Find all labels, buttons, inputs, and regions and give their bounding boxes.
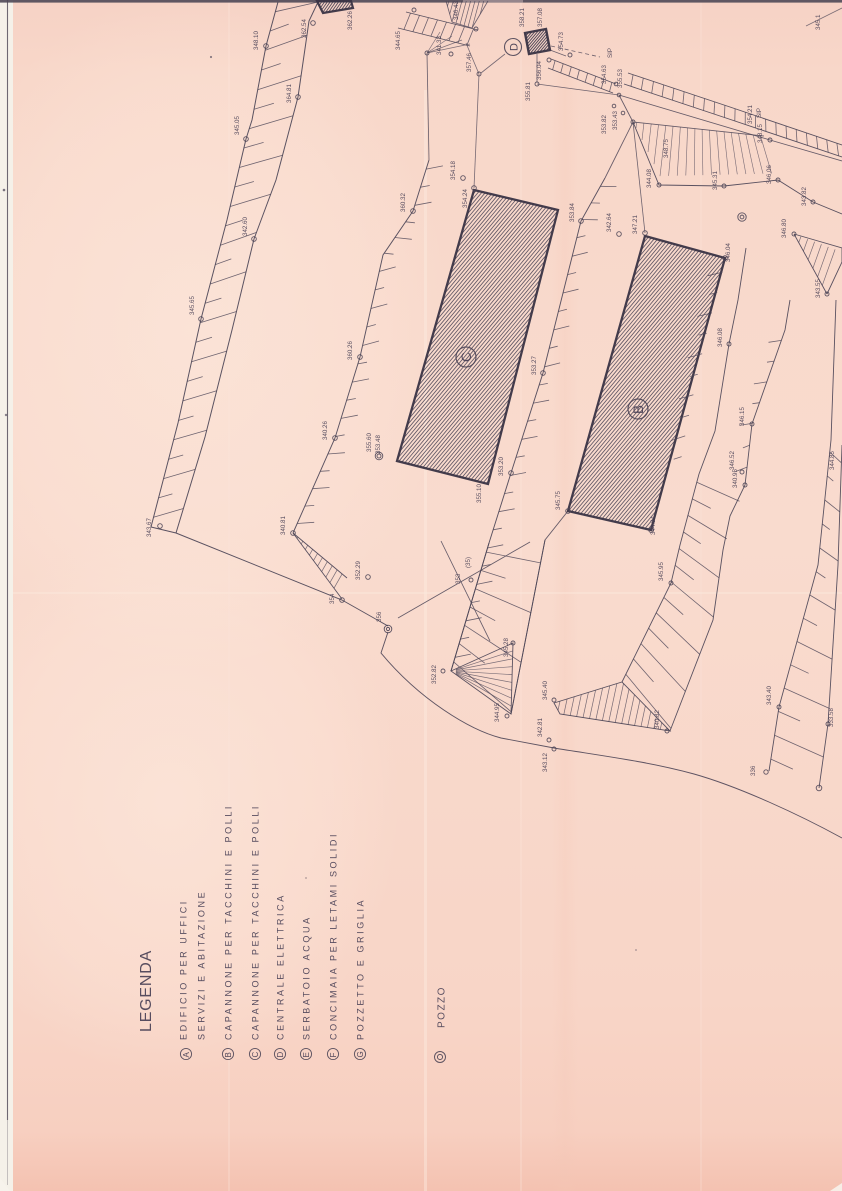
svg-text:C: C: [251, 1052, 260, 1058]
svg-text:355.53: 355.53: [617, 69, 624, 88]
svg-text:345.05: 345.05: [234, 116, 241, 135]
svg-text:345.1: 345.1: [815, 14, 822, 30]
svg-text:353: 353: [455, 573, 462, 584]
svg-text:364.81: 364.81: [286, 84, 293, 103]
svg-text:362.26: 362.26: [347, 11, 354, 30]
svg-text:SIP: SIP: [756, 108, 763, 118]
svg-text:CENTRALE ELETTRICA: CENTRALE ELETTRICA: [276, 893, 286, 1040]
svg-text:344.95: 344.95: [494, 703, 501, 722]
svg-text:357.08: 357.08: [537, 8, 544, 27]
svg-text:346.80: 346.80: [781, 219, 788, 238]
svg-text:SIP: SIP: [607, 48, 614, 58]
svg-text:353.48: 353.48: [375, 435, 382, 454]
svg-text:352.29: 352.29: [355, 561, 362, 580]
svg-text:345.65: 345.65: [189, 296, 196, 315]
svg-text:344.08: 344.08: [646, 169, 653, 188]
svg-text:D: D: [509, 43, 521, 51]
svg-text:353.20: 353.20: [498, 457, 505, 476]
svg-text:360.32: 360.32: [400, 193, 407, 212]
svg-text:340.82: 340.82: [654, 710, 661, 729]
svg-text:CONCIMAIA PER LETAMI SOLID: CONCIMAIA PER LETAMI SOLIDI: [329, 832, 339, 1040]
svg-text:EDIFICIO PER UFFICI: EDIFICIO PER UFFICI: [179, 899, 189, 1040]
svg-text:346.04: 346.04: [725, 243, 732, 262]
svg-text:G: G: [356, 1051, 365, 1057]
svg-text:343.12: 343.12: [542, 753, 549, 772]
svg-text:362.54: 362.54: [301, 19, 308, 38]
svg-text:CAPANNONE PER TACCHINI E P: CAPANNONE PER TACCHINI E POLLI: [251, 804, 261, 1040]
svg-text:357.46: 357.46: [466, 53, 473, 72]
svg-text:343.55: 343.55: [815, 279, 822, 298]
svg-text:345.28: 345.28: [503, 638, 510, 657]
svg-text:336: 336: [750, 765, 757, 776]
svg-text:346.52: 346.52: [729, 451, 736, 470]
svg-text:CAPANNONE PER TACCHINI E P: CAPANNONE PER TACCHINI E POLLI: [224, 804, 234, 1040]
svg-text:354.24: 354.24: [462, 189, 469, 208]
svg-text:352.82: 352.82: [431, 665, 438, 684]
svg-text:SERVIZI E ABITAZIONE: SERVIZI E ABITAZIONE: [197, 890, 207, 1040]
svg-text:C: C: [459, 352, 474, 362]
svg-text:344.85: 344.85: [829, 451, 836, 470]
svg-text:346.15: 346.15: [739, 407, 746, 426]
svg-text:353.84: 353.84: [569, 203, 576, 222]
svg-text:355.10: 355.10: [476, 484, 483, 503]
svg-text:F: F: [329, 1053, 338, 1058]
svg-text:344.34: 344.34: [650, 516, 657, 535]
svg-text:345.40: 345.40: [542, 681, 549, 700]
svg-text:SERBATOIO ACQUA: SERBATOIO ACQUA: [302, 915, 312, 1040]
svg-text:356.04: 356.04: [536, 61, 543, 80]
svg-text:343.67: 343.67: [146, 518, 153, 537]
svg-text:356: 356: [376, 611, 383, 622]
svg-text:354.18: 354.18: [450, 161, 457, 180]
svg-text:LEGENDA: LEGENDA: [138, 950, 155, 1032]
svg-text:353.43: 353.43: [612, 111, 619, 130]
svg-text:E: E: [302, 1052, 311, 1057]
svg-text:346.06: 346.06: [766, 165, 773, 184]
svg-text:B: B: [631, 405, 646, 414]
svg-text:344.65: 344.65: [395, 31, 402, 50]
svg-text:346.08: 346.08: [717, 328, 724, 347]
svg-text:(35): (35): [465, 557, 472, 568]
svg-text:342.64: 342.64: [606, 213, 613, 232]
svg-text:340.26: 340.26: [322, 421, 329, 440]
svg-text:D: D: [276, 1052, 285, 1058]
svg-text:354.21: 354.21: [747, 105, 754, 124]
svg-text:348.15: 348.15: [757, 124, 764, 143]
svg-text:354: 354: [329, 593, 336, 604]
svg-text:360.26: 360.26: [347, 341, 354, 360]
svg-text:354.63: 354.63: [601, 65, 608, 84]
svg-text:355.60: 355.60: [366, 433, 373, 452]
svg-text:353.27: 353.27: [531, 356, 538, 375]
svg-text:340.81: 340.81: [280, 516, 287, 535]
svg-text:346.43: 346.43: [453, 1, 460, 20]
svg-text:345.75: 345.75: [555, 491, 562, 510]
svg-text:POZZO: POZZO: [437, 986, 448, 1028]
svg-text:341.33: 341.33: [436, 36, 443, 55]
svg-text:B: B: [224, 1052, 233, 1057]
svg-text:348.10: 348.10: [253, 31, 260, 50]
svg-text:342.60: 342.60: [242, 217, 249, 236]
svg-text:355.81: 355.81: [525, 82, 532, 101]
svg-text:358.21: 358.21: [519, 8, 526, 27]
svg-text:A: A: [182, 1052, 191, 1058]
svg-text:343.82: 343.82: [801, 187, 808, 206]
svg-text:333.58: 333.58: [828, 708, 835, 727]
svg-text:353.82: 353.82: [601, 115, 608, 134]
svg-text:347.21: 347.21: [632, 215, 639, 234]
svg-text:345.95: 345.95: [658, 562, 665, 581]
svg-text:342.81: 342.81: [537, 718, 544, 737]
svg-text:343.40: 343.40: [766, 686, 773, 705]
svg-text:345.31: 345.31: [712, 171, 719, 190]
svg-text:POZZETTO E GRIGLIA: POZZETTO E GRIGLIA: [356, 898, 366, 1040]
